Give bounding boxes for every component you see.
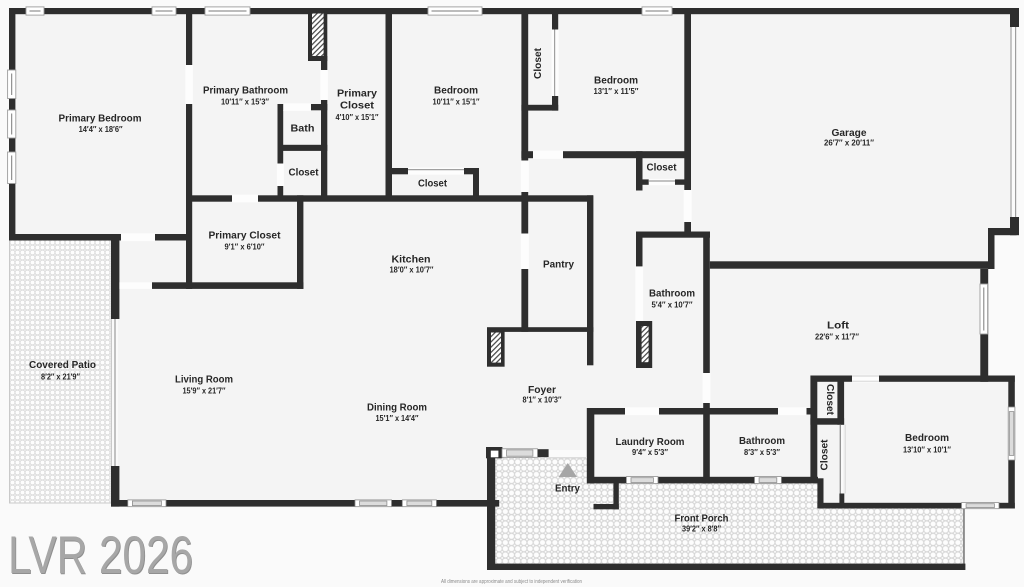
svg-text:Laundry Room: Laundry Room (616, 436, 685, 448)
svg-text:8′1″ x 10′3″: 8′1″ x 10′3″ (523, 396, 562, 405)
svg-text:22′6″ x 11′7″: 22′6″ x 11′7″ (815, 333, 859, 342)
svg-text:Bedroom: Bedroom (905, 432, 949, 444)
svg-text:Primary: Primary (337, 88, 377, 100)
svg-text:10′11″ x 15′1″: 10′11″ x 15′1″ (433, 98, 480, 107)
svg-text:13′10″ x 10′1″: 13′10″ x 10′1″ (903, 446, 951, 455)
svg-text:Dining Room: Dining Room (367, 402, 427, 414)
svg-text:Closet: Closet (418, 179, 448, 190)
svg-text:Bedroom: Bedroom (434, 85, 478, 97)
svg-text:Garage: Garage (832, 127, 867, 139)
svg-text:5′4″ x 10′7″: 5′4″ x 10′7″ (652, 301, 693, 310)
svg-text:Entry: Entry (555, 483, 580, 495)
svg-text:8′2″ x 21′9″: 8′2″ x 21′9″ (41, 373, 80, 382)
svg-text:14′4″ x 18′6″: 14′4″ x 18′6″ (79, 125, 123, 134)
svg-text:39′2″ x 8′8″: 39′2″ x 8′8″ (682, 525, 721, 534)
svg-text:18′0″ x 10′7″: 18′0″ x 10′7″ (390, 266, 434, 275)
svg-text:26′7″ x 20′11″: 26′7″ x 20′11″ (824, 139, 874, 148)
svg-text:Pantry: Pantry (543, 259, 574, 271)
svg-text:9′1″ x 6′10″: 9′1″ x 6′10″ (225, 243, 265, 252)
svg-text:Closet: Closet (820, 439, 831, 471)
svg-text:Bath: Bath (291, 124, 315, 135)
svg-text:Closet: Closet (289, 168, 320, 179)
svg-text:Front Porch: Front Porch (675, 513, 729, 525)
svg-text:Primary Closet: Primary Closet (209, 230, 281, 242)
svg-text:Foyer: Foyer (528, 384, 556, 396)
svg-text:4′10″ x 15′1″: 4′10″ x 15′1″ (336, 113, 379, 122)
svg-text:All dimensions are approximate: All dimensions are approximate and subje… (441, 579, 582, 585)
svg-text:13′1″ x 11′5″: 13′1″ x 11′5″ (594, 87, 639, 96)
svg-text:Closet: Closet (824, 384, 835, 416)
svg-text:8′3″ x 5′3″: 8′3″ x 5′3″ (744, 448, 780, 457)
svg-text:Closet: Closet (533, 47, 544, 79)
svg-text:Bedroom: Bedroom (594, 75, 638, 87)
svg-text:Loft: Loft (827, 320, 850, 332)
svg-text:9′4″ x 5′3″: 9′4″ x 5′3″ (632, 448, 668, 457)
svg-text:Closet: Closet (647, 163, 678, 174)
svg-text:Living Room: Living Room (175, 374, 233, 386)
svg-text:Primary Bathroom: Primary Bathroom (203, 85, 288, 97)
svg-text:Bathroom: Bathroom (739, 435, 785, 447)
svg-text:LVR 2026: LVR 2026 (8, 526, 193, 585)
svg-text:Primary Bedroom: Primary Bedroom (59, 113, 142, 125)
svg-text:Closet: Closet (340, 100, 375, 112)
svg-text:15′1″ x 14′4″: 15′1″ x 14′4″ (376, 414, 419, 423)
svg-text:Bathroom: Bathroom (649, 288, 695, 300)
svg-text:Kitchen: Kitchen (392, 254, 431, 266)
svg-text:Covered Patio: Covered Patio (29, 359, 96, 371)
svg-text:15′9″ x 21′7″: 15′9″ x 21′7″ (183, 387, 226, 396)
svg-text:10′11″ x 15′3″: 10′11″ x 15′3″ (221, 98, 269, 107)
